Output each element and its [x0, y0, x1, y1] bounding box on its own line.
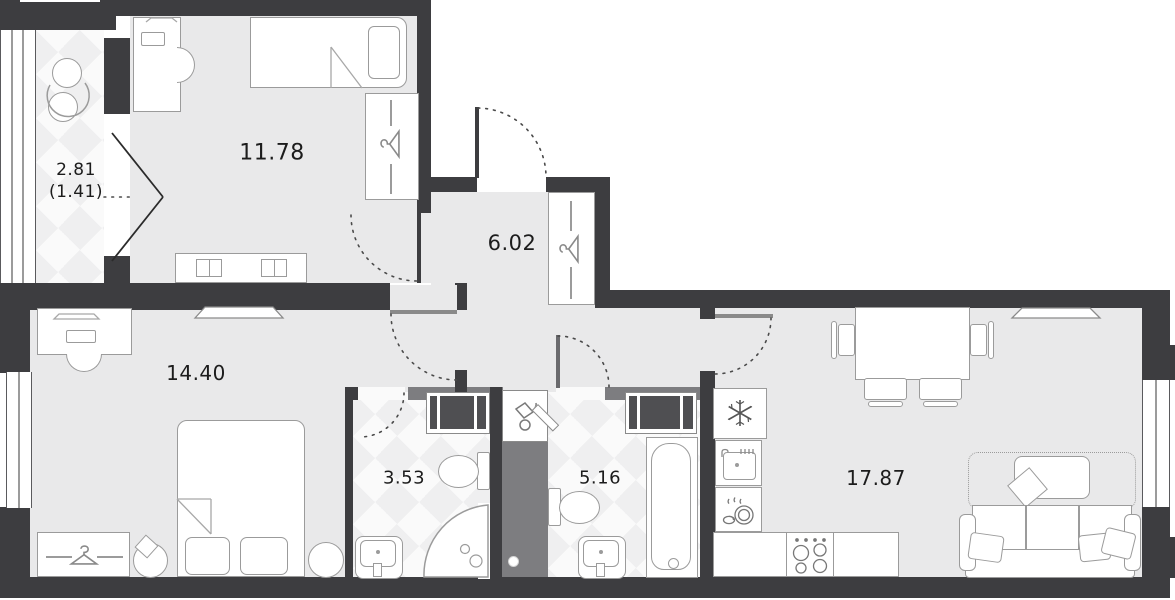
- wardrobe-rail: [97, 556, 123, 558]
- pillow: [185, 537, 230, 575]
- toilet-bowl: [559, 491, 600, 524]
- dresser: [175, 253, 307, 283]
- washer-panel: [629, 396, 637, 429]
- bathroom1-doorway: [358, 387, 405, 400]
- bathroom-sink: [355, 536, 403, 579]
- bathtub-basin: [651, 443, 691, 570]
- room-label-living: 17.87: [846, 466, 906, 490]
- nightstand: [308, 542, 344, 578]
- room-label-balcony-counted: (1.41): [49, 182, 103, 202]
- wall-right-step-upper: [1166, 345, 1175, 380]
- wardrobe: [365, 93, 419, 200]
- wall-hallway-right: [595, 177, 610, 308]
- wall-band-bedroom2-top: [0, 283, 390, 310]
- faucet-icon: [719, 443, 759, 453]
- bathtub-drain: [668, 558, 679, 569]
- kitchen-sink-cabinet: [715, 440, 762, 486]
- wardrobe-rail: [390, 100, 392, 126]
- fridge: [713, 388, 767, 439]
- dining-chair-back: [988, 321, 994, 359]
- dishwasher-cabinet: [715, 487, 762, 532]
- wall-right-step-lower: [1168, 537, 1175, 578]
- dining-chair-back: [831, 321, 837, 359]
- wall-bathroom1-stub: [345, 387, 358, 400]
- window-mullion: [1155, 380, 1157, 507]
- room-label-balcony-total: 2.81: [56, 160, 96, 180]
- room-label-bathroom2: 5.16: [579, 468, 621, 489]
- washer-drum: [440, 396, 474, 429]
- wardrobe-rail: [570, 267, 572, 299]
- sink-drain: [599, 550, 603, 554]
- wall-bedroom2-bathroom1: [345, 387, 353, 577]
- bathroom-sink: [578, 536, 626, 579]
- wardrobe-rail: [390, 164, 392, 194]
- sink-drain: [376, 550, 380, 554]
- bathtub: [646, 437, 698, 578]
- stove: [786, 532, 834, 577]
- toilet-bowl: [438, 455, 479, 488]
- dining-chair: [864, 378, 907, 400]
- wall-alcove-stub: [455, 370, 467, 392]
- glazing-mullion: [22, 30, 24, 283]
- sink-faucet: [596, 563, 605, 577]
- room-label-hallway: 6.02: [488, 231, 537, 255]
- bedroom1-door-leaf: [417, 213, 421, 283]
- tub-edge: [478, 503, 490, 579]
- living-door-leaf: [715, 314, 773, 318]
- cabinet-door-icon: [196, 259, 222, 277]
- desk-laptop: [66, 330, 96, 343]
- pillow: [368, 26, 400, 79]
- window-mullion: [18, 372, 20, 508]
- living-window: [1142, 380, 1170, 507]
- hanger-icon: [378, 129, 406, 159]
- dining-chair-base: [868, 401, 903, 407]
- hall-wardrobe: [548, 192, 595, 305]
- dining-chair: [838, 324, 855, 356]
- wall-left-mid-lower: [0, 507, 30, 578]
- balcony-glazing: [0, 30, 36, 283]
- wall-living-door-top: [700, 305, 715, 319]
- wall-living-door-bottom: [700, 371, 715, 387]
- washer-panel: [430, 396, 437, 429]
- balcony-stool: [52, 58, 82, 88]
- bathroom2-door-leaf: [556, 335, 560, 388]
- floor-plan: 11.78 2.81 (1.41) 6.02 14.40 3.53 5.16 1…: [0, 0, 1175, 600]
- hanger-icon: [69, 543, 99, 571]
- wall-top-main: [610, 290, 1168, 308]
- wardrobe-rail: [570, 201, 572, 231]
- snowflake-icon: [725, 398, 755, 428]
- room-label-bathroom1: 3.53: [383, 468, 425, 489]
- bedroom2-doorway: [390, 285, 457, 310]
- pillow: [240, 537, 288, 575]
- sofa-pillow: [967, 532, 1004, 563]
- room-label-bedroom2: 14.40: [166, 361, 226, 385]
- wall-entry-left: [417, 177, 477, 192]
- wall-top-bedroom1: [100, 0, 431, 16]
- balcony-stool: [48, 92, 78, 122]
- dining-chair: [919, 378, 962, 400]
- dining-chair: [970, 324, 987, 356]
- sink-drain: [735, 463, 739, 467]
- water-heater-icon: [511, 399, 539, 433]
- wardrobe: [37, 532, 130, 577]
- sofa-seat: [1026, 505, 1079, 551]
- stove-burners: [789, 535, 831, 575]
- bathroom2-doorway: [556, 387, 605, 400]
- glazing-mullion: [11, 30, 13, 283]
- living-doorway: [700, 319, 715, 371]
- washer-drum: [640, 396, 680, 429]
- sink-faucet: [373, 563, 382, 577]
- entry-door-leaf: [475, 107, 479, 178]
- wall-bottom: [0, 577, 1170, 598]
- wall-balcony-divider-top: [104, 38, 130, 114]
- washer-panel: [683, 396, 693, 429]
- wall-top-balcony: [0, 2, 116, 30]
- entry-door-arc: [478, 108, 546, 177]
- dining-chair-base: [923, 401, 958, 407]
- room-label-bedroom1: 11.78: [239, 141, 304, 166]
- bedroom2-door-leaf: [390, 310, 457, 314]
- dishes-icon: [720, 493, 758, 529]
- cabinet-door-icon: [261, 259, 287, 277]
- desk-laptop: [141, 32, 165, 46]
- wall-right-lower: [1142, 507, 1170, 578]
- floor-drain: [508, 556, 519, 567]
- washer-panel: [477, 396, 486, 429]
- hanger-icon: [557, 234, 585, 264]
- bedroom2-window: [6, 372, 32, 508]
- washing-machine: [625, 392, 697, 434]
- wall-balcony-divider-bottom: [104, 256, 130, 284]
- washing-machine: [426, 392, 490, 434]
- wall-niche-left: [490, 387, 502, 577]
- dining-table: [855, 307, 970, 380]
